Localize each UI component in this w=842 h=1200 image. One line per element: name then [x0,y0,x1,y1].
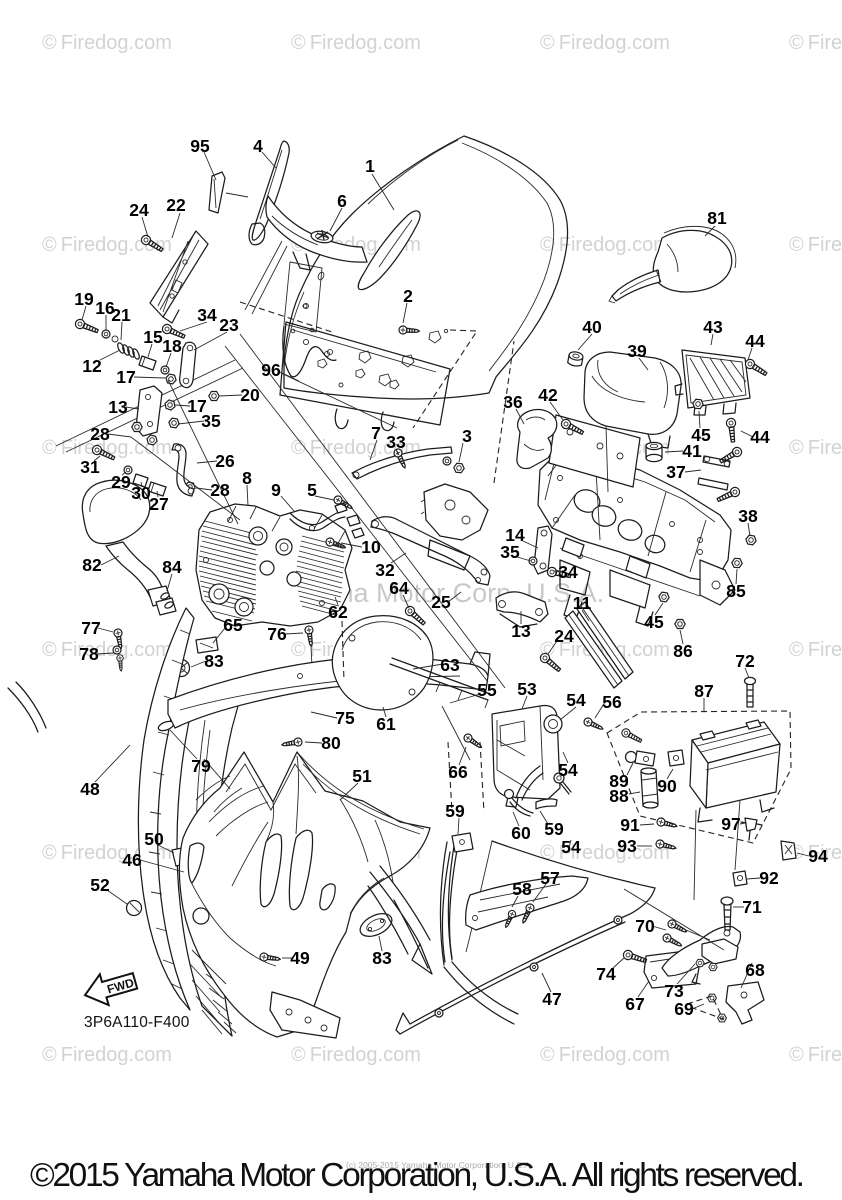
svg-text:74: 74 [596,964,616,984]
svg-text:48: 48 [80,779,100,799]
svg-text:© Firedog.com: © Firedog.com [540,842,670,864]
svg-text:45: 45 [644,612,664,632]
svg-text:35: 35 [201,411,221,431]
svg-text:45: 45 [691,425,711,445]
svg-text:17: 17 [116,367,135,387]
svg-text:54: 54 [566,690,586,710]
svg-text:79: 79 [191,756,211,776]
svg-text:83: 83 [372,948,392,968]
svg-text:59: 59 [544,819,564,839]
svg-text:93: 93 [617,836,637,856]
svg-text:3P6A110-F400: 3P6A110-F400 [84,1014,190,1031]
svg-text:27: 27 [149,494,168,514]
svg-text:49: 49 [290,948,310,968]
svg-text:87: 87 [694,681,713,701]
svg-text:43: 43 [703,317,723,337]
svg-text:© Firedog.com: © Firedog.com [789,1044,842,1066]
svg-text:© Firedog.com: © Firedog.com [540,1044,670,1066]
svg-text:40: 40 [582,317,602,337]
svg-text:28: 28 [210,480,230,500]
svg-text:54: 54 [561,837,581,857]
svg-text:61: 61 [376,714,396,734]
svg-text:20: 20 [240,385,260,405]
svg-text:9: 9 [271,480,281,500]
svg-text:47: 47 [542,989,561,1009]
svg-text:21: 21 [111,305,131,325]
svg-text:89: 89 [609,771,629,791]
svg-text:© Firedog.com: © Firedog.com [789,437,842,459]
svg-text:63: 63 [440,655,460,675]
svg-text:91: 91 [620,815,640,835]
svg-text:67: 67 [625,994,644,1014]
svg-text:83: 83 [204,651,224,671]
svg-text:© Firedog.com: © Firedog.com [789,32,842,54]
svg-text:34: 34 [558,562,578,582]
svg-text:13: 13 [108,397,128,417]
svg-text:82: 82 [82,555,102,575]
svg-text:2: 2 [403,286,413,306]
svg-text:50: 50 [144,829,164,849]
svg-text:54: 54 [558,760,578,780]
svg-text:77: 77 [81,618,100,638]
svg-text:64: 64 [389,578,409,598]
svg-text:6: 6 [337,191,347,211]
svg-text:97: 97 [721,814,740,834]
svg-text:73: 73 [664,981,684,1001]
svg-text:53: 53 [517,679,537,699]
svg-text:© Firedog.com: © Firedog.com [291,32,421,54]
svg-text:©2015 Yamaha Motor Corporation: ©2015 Yamaha Motor Corporation, U.S.A. A… [30,1157,805,1194]
svg-text:8: 8 [242,468,252,488]
svg-text:32: 32 [375,560,395,580]
svg-text:52: 52 [90,875,110,895]
svg-text:57: 57 [540,868,559,888]
svg-text:28: 28 [90,424,110,444]
svg-text:© Firedog.com: © Firedog.com [42,639,172,661]
svg-text:84: 84 [162,557,182,577]
svg-text:© Firedog.com: © Firedog.com [540,32,670,54]
svg-text:31: 31 [80,457,100,477]
svg-text:© Firedog.com: © Firedog.com [789,639,842,661]
svg-text:35: 35 [500,542,520,562]
svg-text:59: 59 [445,801,465,821]
svg-text:4: 4 [253,136,263,156]
svg-text:92: 92 [759,868,779,888]
svg-text:70: 70 [635,916,655,936]
svg-text:56: 56 [602,692,622,712]
svg-text:© Firedog.com: © Firedog.com [42,32,172,54]
svg-text:18: 18 [162,336,182,356]
svg-text:© Firedog.com: © Firedog.com [789,234,842,256]
svg-text:19: 19 [74,289,94,309]
svg-text:95: 95 [190,136,210,156]
svg-text:58: 58 [512,879,532,899]
svg-text:44: 44 [750,427,770,447]
svg-text:75: 75 [335,708,355,728]
svg-text:36: 36 [503,392,523,412]
svg-text:76: 76 [267,624,287,644]
svg-text:81: 81 [707,208,727,228]
svg-text:24: 24 [129,200,149,220]
svg-text:68: 68 [745,960,765,980]
svg-text:11: 11 [573,593,592,613]
svg-text:13: 13 [511,621,531,641]
svg-text:42: 42 [538,385,558,405]
svg-text:30: 30 [131,483,151,503]
svg-text:46: 46 [122,850,142,870]
svg-text:5: 5 [307,480,317,500]
svg-text:38: 38 [738,506,758,526]
svg-text:7: 7 [371,423,381,443]
svg-text:65: 65 [223,615,243,635]
svg-text:37: 37 [666,462,685,482]
svg-text:71: 71 [742,897,762,917]
svg-text:29: 29 [111,472,131,492]
svg-text:96: 96 [261,360,281,380]
svg-text:94: 94 [808,846,828,866]
svg-text:72: 72 [735,651,755,671]
svg-text:86: 86 [673,641,693,661]
svg-text:33: 33 [386,432,406,452]
svg-text:80: 80 [321,733,341,753]
svg-text:15: 15 [143,327,163,347]
svg-text:10: 10 [361,537,381,557]
svg-text:62: 62 [328,602,348,622]
svg-text:44: 44 [745,331,765,351]
svg-text:66: 66 [448,762,468,782]
svg-text:3: 3 [462,426,472,446]
svg-text:25: 25 [431,592,451,612]
svg-text:90: 90 [657,776,677,796]
svg-text:12: 12 [82,356,102,376]
svg-text:69: 69 [674,999,694,1019]
svg-text:© Firedog.com: © Firedog.com [540,234,670,256]
svg-text:60: 60 [511,823,531,843]
svg-text:1: 1 [365,156,375,176]
svg-text:39: 39 [627,341,647,361]
svg-text:55: 55 [477,680,497,700]
svg-text:26: 26 [215,451,235,471]
svg-text:34: 34 [197,305,217,325]
svg-text:© Firedog.com: © Firedog.com [291,1044,421,1066]
svg-text:23: 23 [219,315,239,335]
svg-text:85: 85 [726,581,746,601]
svg-text:24: 24 [554,626,574,646]
svg-text:78: 78 [79,644,99,664]
svg-text:51: 51 [352,766,372,786]
svg-text:© Firedog.com: © Firedog.com [42,1044,172,1066]
svg-text:22: 22 [166,195,186,215]
